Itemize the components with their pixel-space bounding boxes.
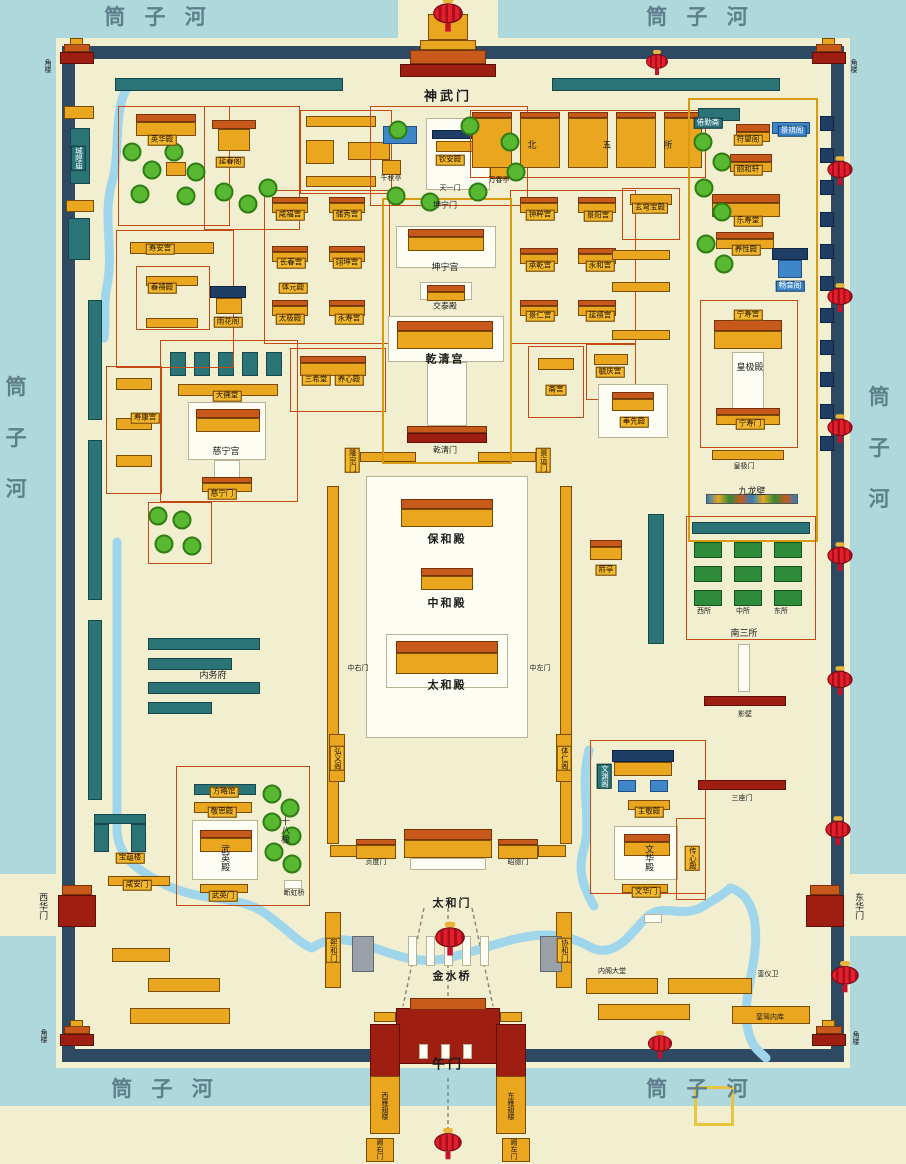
- lantern-body: [827, 547, 852, 564]
- lantern-body: [827, 161, 852, 178]
- lantern-icon: [825, 282, 855, 312]
- lantern-body: [433, 3, 463, 23]
- lantern-icon: [825, 413, 855, 443]
- lantern-icon: [825, 541, 855, 571]
- lantern-icon: [825, 665, 855, 695]
- lantern-icon: [432, 920, 467, 955]
- lantern-icon: [829, 960, 862, 993]
- lantern-icon: [644, 49, 670, 75]
- lantern-body: [825, 821, 850, 838]
- lantern-body: [646, 54, 668, 69]
- lantern-icon: [646, 1030, 675, 1059]
- forbidden-city-map: 筒 子 河筒 子 河筒子河筒子河筒 子 河筒 子 河角楼角楼角楼角楼神武门午门西…: [0, 0, 906, 1164]
- lantern-body: [435, 927, 465, 947]
- lantern-body: [434, 1133, 462, 1152]
- lantern-icon: [825, 155, 855, 185]
- lantern-icon: [432, 1127, 465, 1160]
- lantern-body: [831, 966, 859, 985]
- lantern-body: [648, 1035, 672, 1052]
- lantern-body: [827, 288, 852, 305]
- lantern-body: [827, 671, 852, 688]
- lantern-layer: [0, 0, 906, 1164]
- lantern-icon: [430, 0, 465, 32]
- lantern-body: [827, 419, 852, 436]
- lantern-icon: [823, 815, 853, 845]
